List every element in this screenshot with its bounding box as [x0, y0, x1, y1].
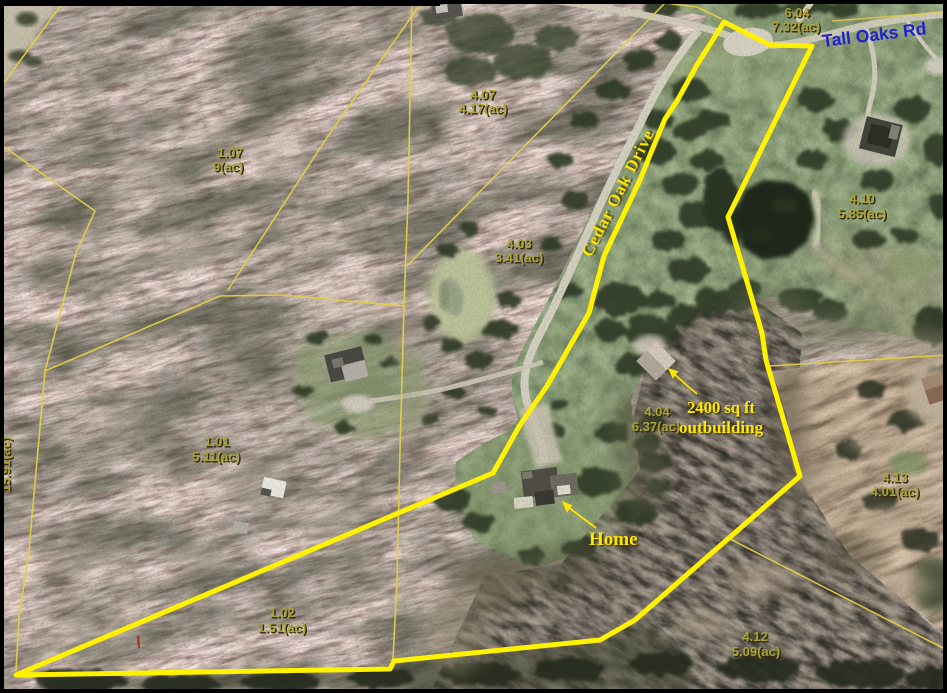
- svg-text:1.01: 1.01: [204, 434, 229, 449]
- svg-text:4.12: 4.12: [742, 629, 767, 644]
- svg-text:4.17(ac): 4.17(ac): [459, 101, 507, 116]
- svg-text:5.85(ac): 5.85(ac): [838, 206, 886, 221]
- svg-text:4.07: 4.07: [470, 87, 495, 102]
- svg-text:5.09(ac): 5.09(ac): [732, 644, 780, 659]
- svg-text:9(ac): 9(ac): [213, 159, 243, 174]
- svg-text:Home: Home: [589, 529, 638, 550]
- svg-text:2400 sq ft: 2400 sq ft: [687, 398, 755, 417]
- svg-text:6.04: 6.04: [784, 5, 810, 20]
- svg-text:1.02: 1.02: [269, 605, 294, 620]
- svg-text:3.41(ac): 3.41(ac): [495, 250, 543, 265]
- svg-text:1.51(ac): 1.51(ac): [258, 620, 306, 635]
- svg-text:5.11(ac): 5.11(ac): [192, 449, 240, 464]
- svg-text:6.37(ac): 6.37(ac): [632, 419, 680, 434]
- svg-text:4.04: 4.04: [644, 404, 670, 419]
- svg-text:4.01(ac): 4.01(ac): [871, 484, 919, 499]
- svg-text:4.03: 4.03: [506, 236, 531, 251]
- svg-text:4.10: 4.10: [849, 191, 874, 206]
- svg-text:4.13: 4.13: [882, 470, 907, 485]
- svg-text:7.32(ac): 7.32(ac): [772, 19, 820, 34]
- svg-text:1.07: 1.07: [217, 145, 242, 160]
- svg-text:outbuilding: outbuilding: [679, 418, 764, 437]
